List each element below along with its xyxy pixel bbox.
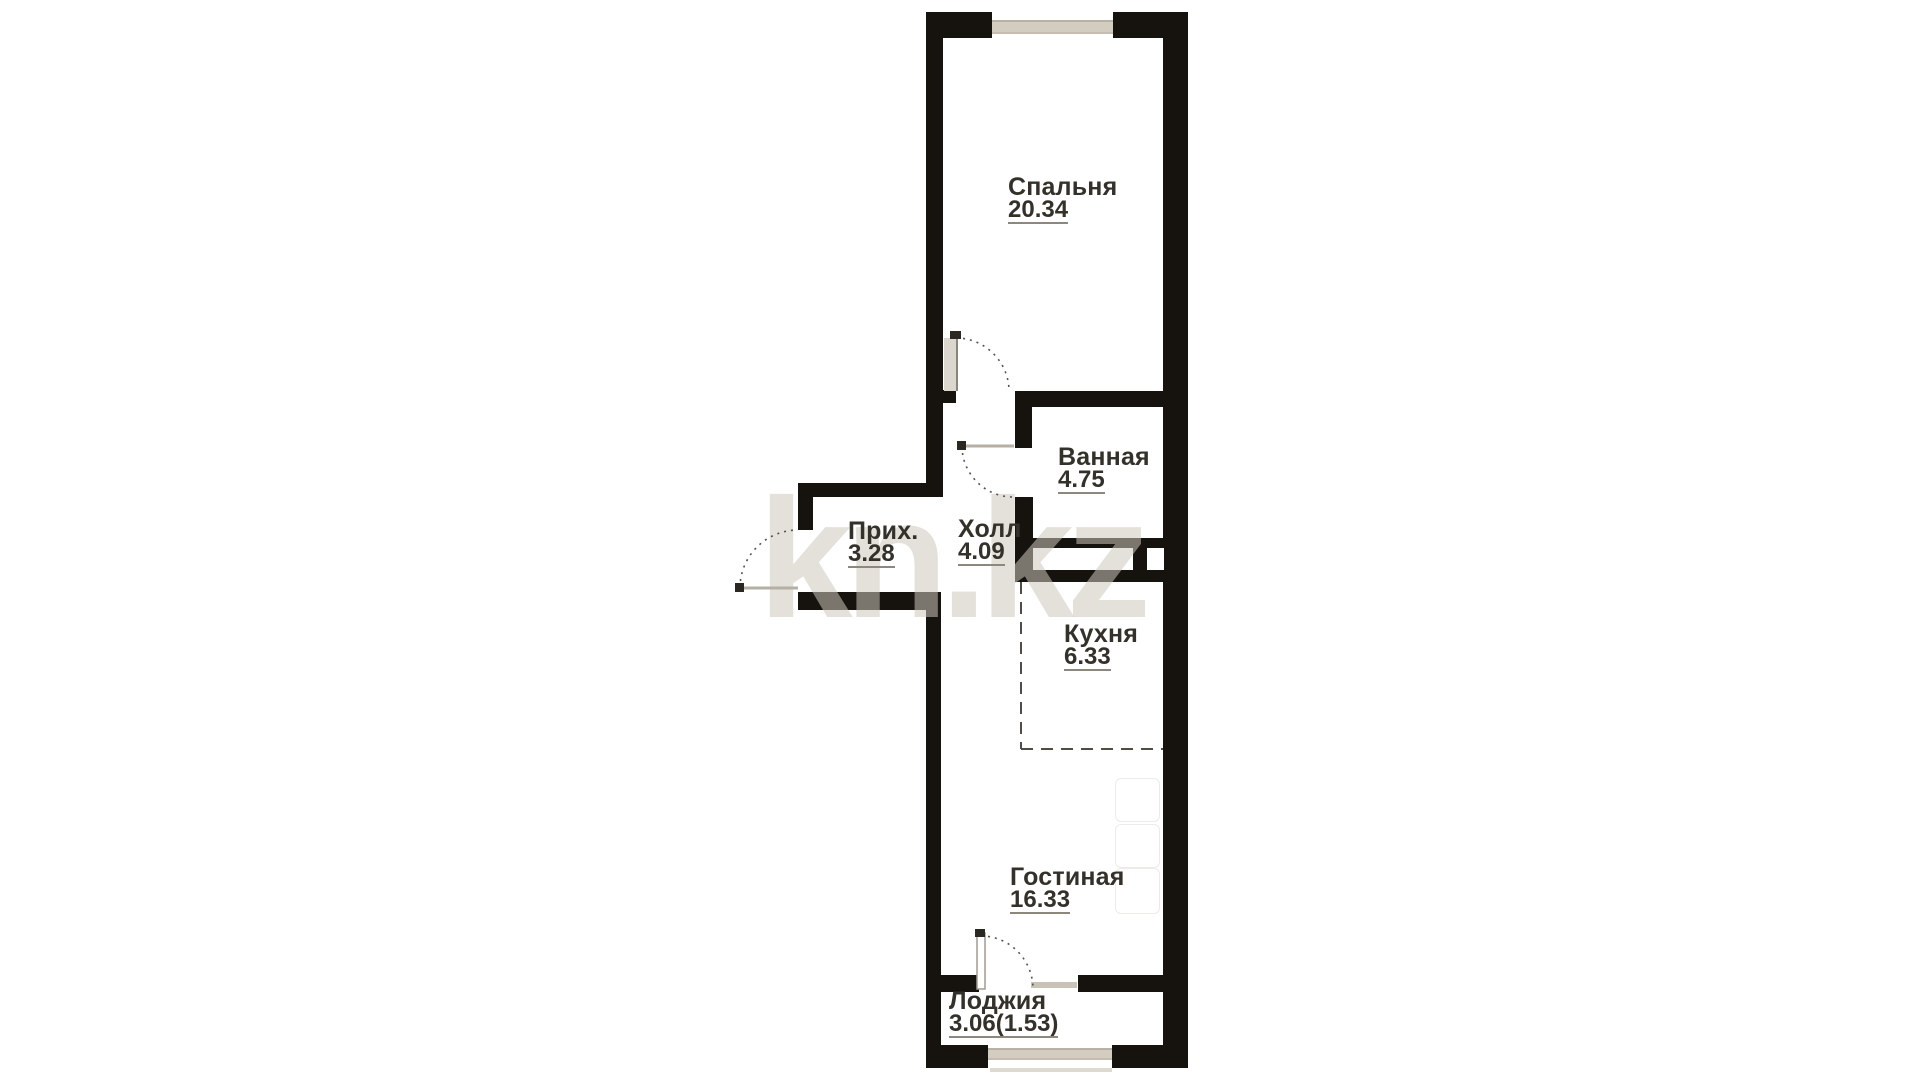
loggia-door-hinge-cap [975, 929, 985, 937]
room-name: Прих. [848, 520, 918, 542]
room-name: Спальня [1008, 176, 1117, 198]
bedroom-door-hinge-cap [950, 331, 961, 339]
room-area: 3.06(1.53) [949, 1013, 1058, 1038]
room-area: 16.33 [1010, 889, 1070, 914]
room-name: Холл [958, 518, 1022, 540]
bathroom-door-swing-arc [962, 446, 1013, 497]
bedroom-door-leaf [944, 338, 957, 391]
room-name: Лоджия [949, 990, 1058, 1012]
room-area: 3.28 [848, 543, 895, 568]
room-label-entry: Прих. 3.28 [848, 520, 918, 568]
loggia-door-swing-arc [981, 936, 1033, 989]
entrance-door-hinge-cap [735, 583, 744, 592]
loggia-door-leaf [977, 933, 985, 989]
room-area: 20.34 [1008, 199, 1068, 224]
floor-plan-canvas: kn.kz Спальня 20.34 Ванная 4.75 Прих. 3.… [0, 0, 1920, 1080]
room-name: Ванная [1058, 446, 1150, 468]
entrance-door-swing-arc [740, 530, 798, 588]
room-name: Гостиная [1010, 866, 1125, 888]
bathroom-door-hinge-cap [957, 441, 966, 450]
room-label-kitchen: Кухня 6.33 [1064, 623, 1138, 671]
room-label-bedroom: Спальня 20.34 [1008, 176, 1117, 224]
room-name: Кухня [1064, 623, 1138, 645]
room-label-loggia: Лоджия 3.06(1.53) [949, 990, 1058, 1038]
room-label-hall: Холл 4.09 [958, 518, 1022, 566]
bedroom-door-swing-arc [956, 338, 1009, 391]
room-label-living: Гостиная 16.33 [1010, 866, 1125, 914]
room-area: 4.09 [958, 541, 1005, 566]
room-area: 4.75 [1058, 469, 1105, 494]
room-label-bathroom: Ванная 4.75 [1058, 446, 1150, 494]
room-area: 6.33 [1064, 646, 1111, 671]
